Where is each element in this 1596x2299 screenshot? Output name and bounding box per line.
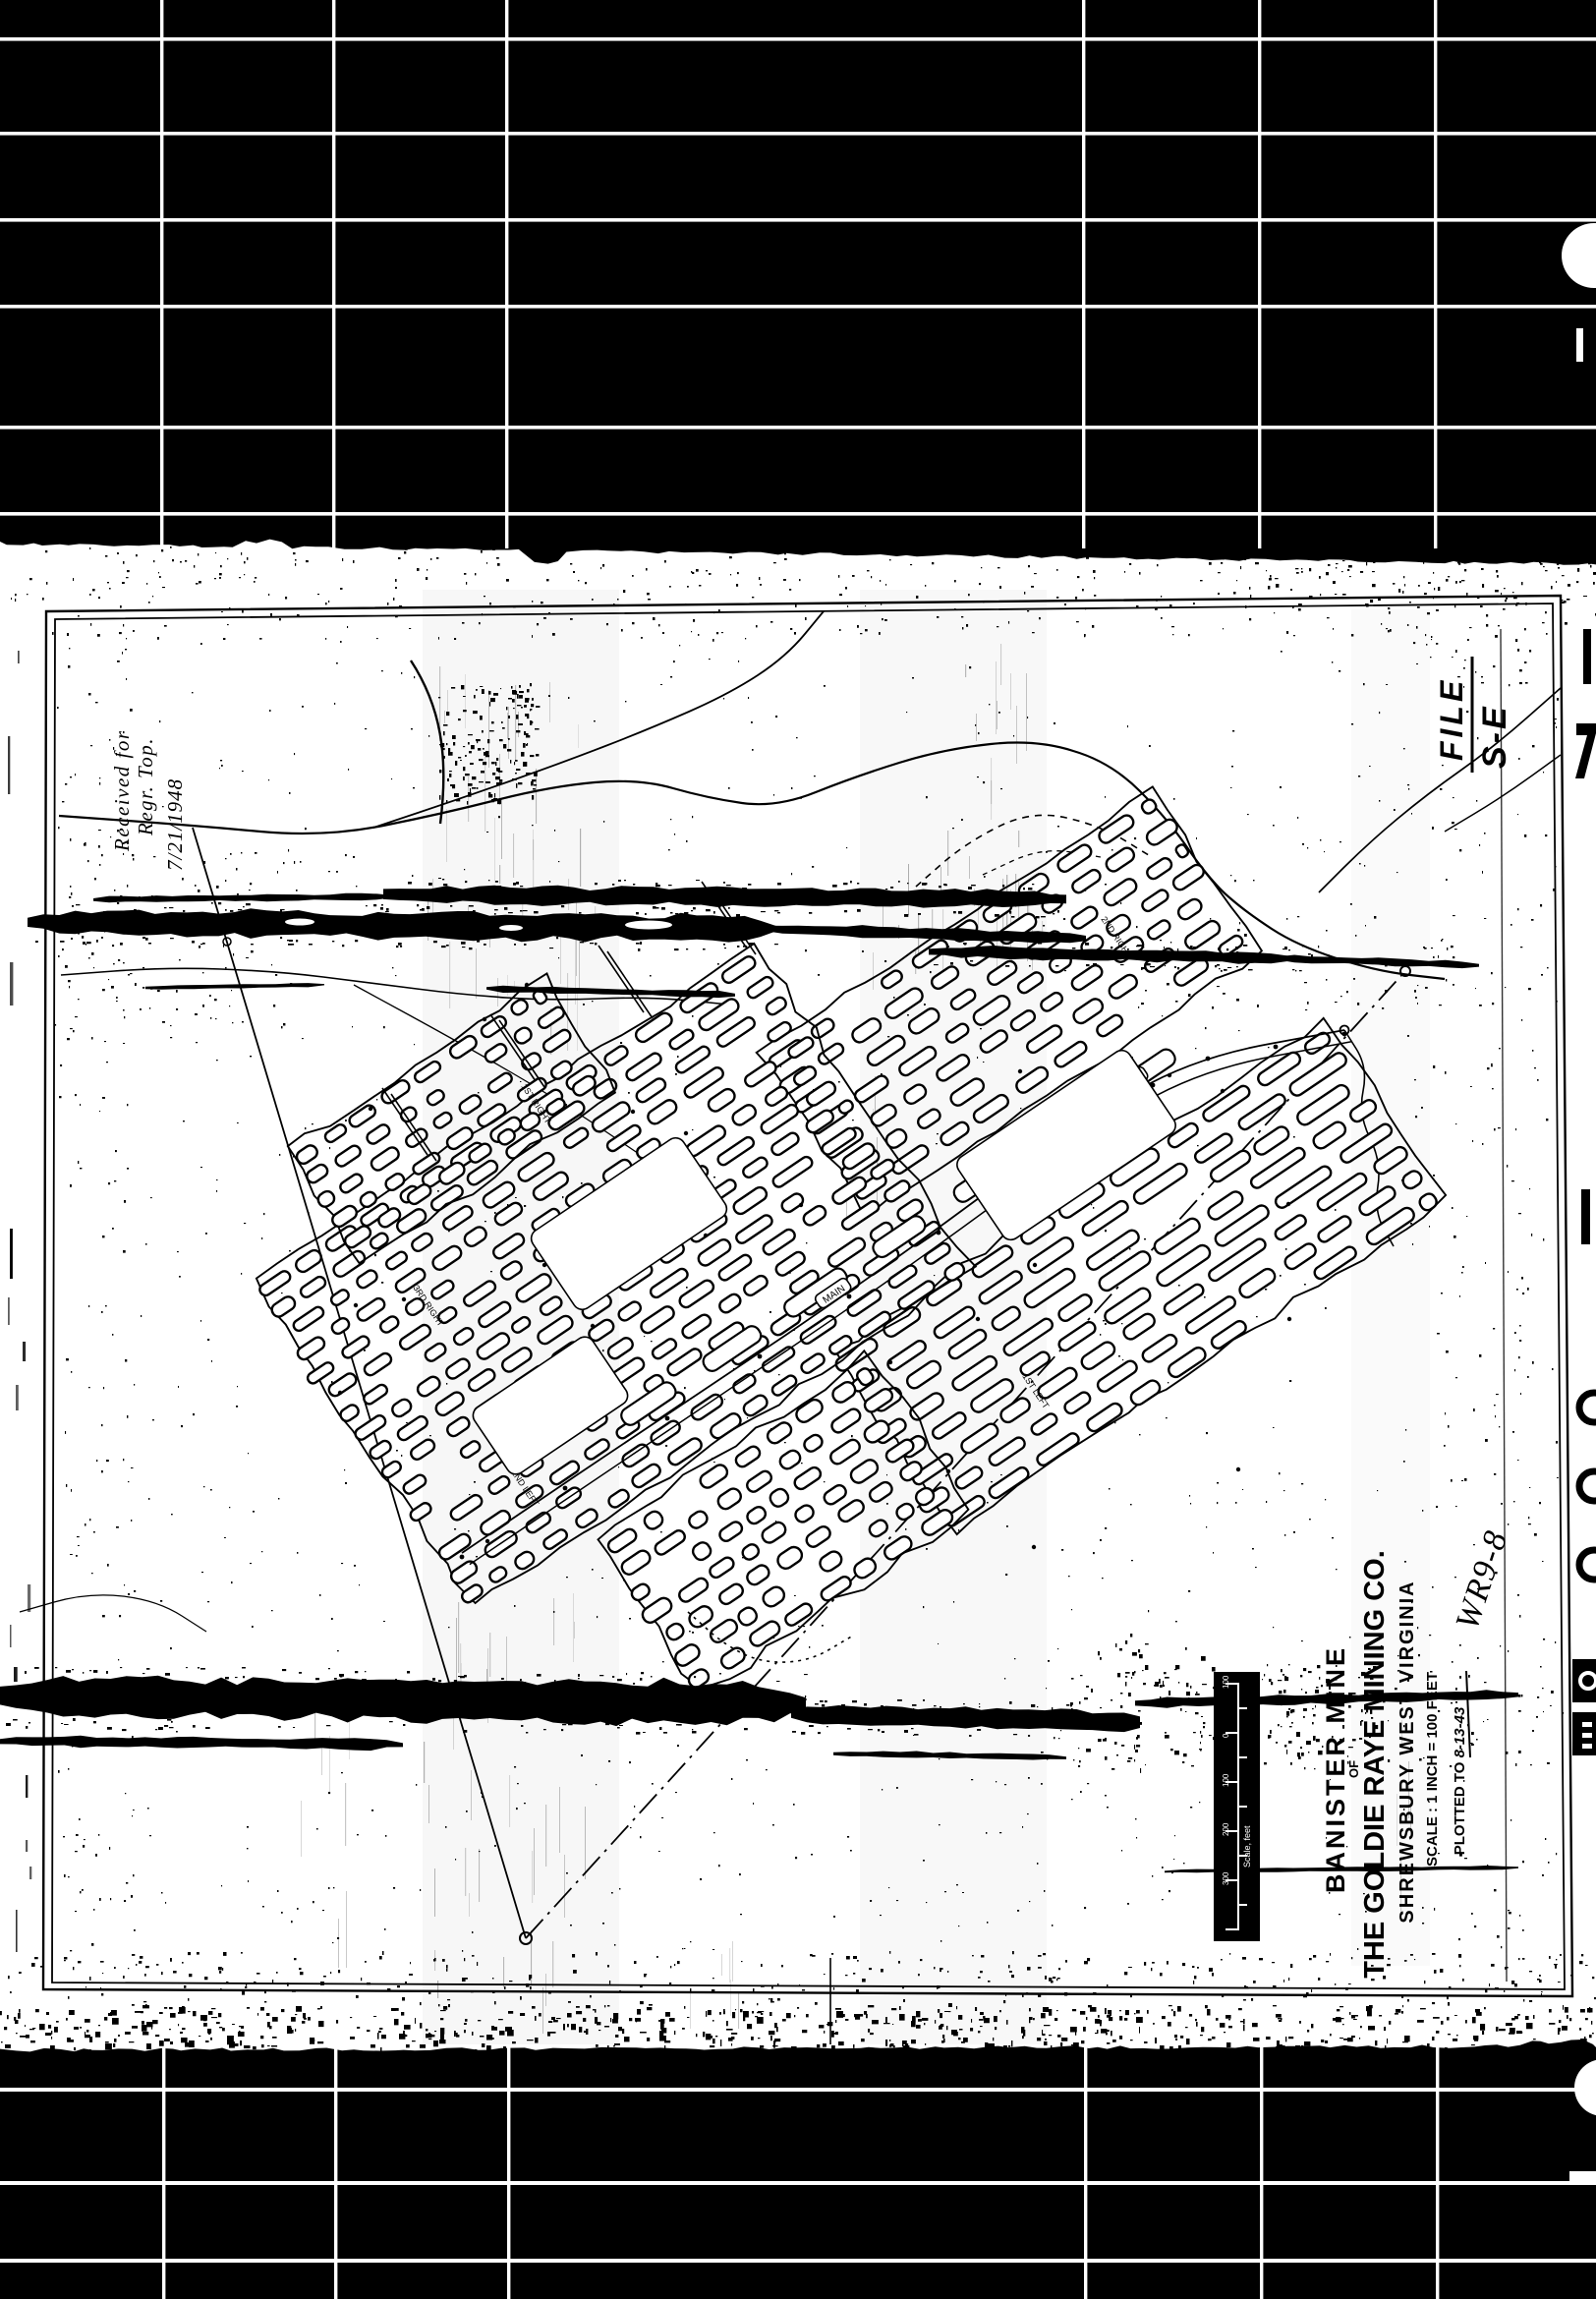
svg-text:Received for: Received for bbox=[110, 729, 134, 852]
svg-text:THE GOLDIE RAYE MINING CO.: THE GOLDIE RAYE MINING CO. bbox=[1359, 1550, 1391, 1979]
svg-text:SHREWSBURY WEST VIRGINIA: SHREWSBURY WEST VIRGINIA bbox=[1396, 1580, 1418, 1923]
svg-text:300: 300 bbox=[1222, 1871, 1230, 1885]
svg-text:SCALE : 1 INCH = 100 FEET: SCALE : 1 INCH = 100 FEET bbox=[1424, 1672, 1441, 1867]
svg-text:Scale, feet: Scale, feet bbox=[1242, 1825, 1252, 1868]
svg-text:100: 100 bbox=[1222, 1773, 1230, 1787]
svg-text:200: 200 bbox=[1222, 1822, 1230, 1836]
svg-text:S-E: S-E bbox=[1476, 704, 1513, 769]
svg-text:PLOTTED TO 8-13-43: PLOTTED TO 8-13-43 bbox=[1452, 1706, 1468, 1855]
svg-text:7/21/1948: 7/21/1948 bbox=[163, 778, 187, 871]
svg-text:0: 0 bbox=[1222, 1733, 1230, 1738]
svg-text:Regr. Top.: Regr. Top. bbox=[134, 737, 157, 836]
svg-text:FILE: FILE bbox=[1434, 677, 1469, 761]
svg-text:100: 100 bbox=[1222, 1675, 1230, 1689]
